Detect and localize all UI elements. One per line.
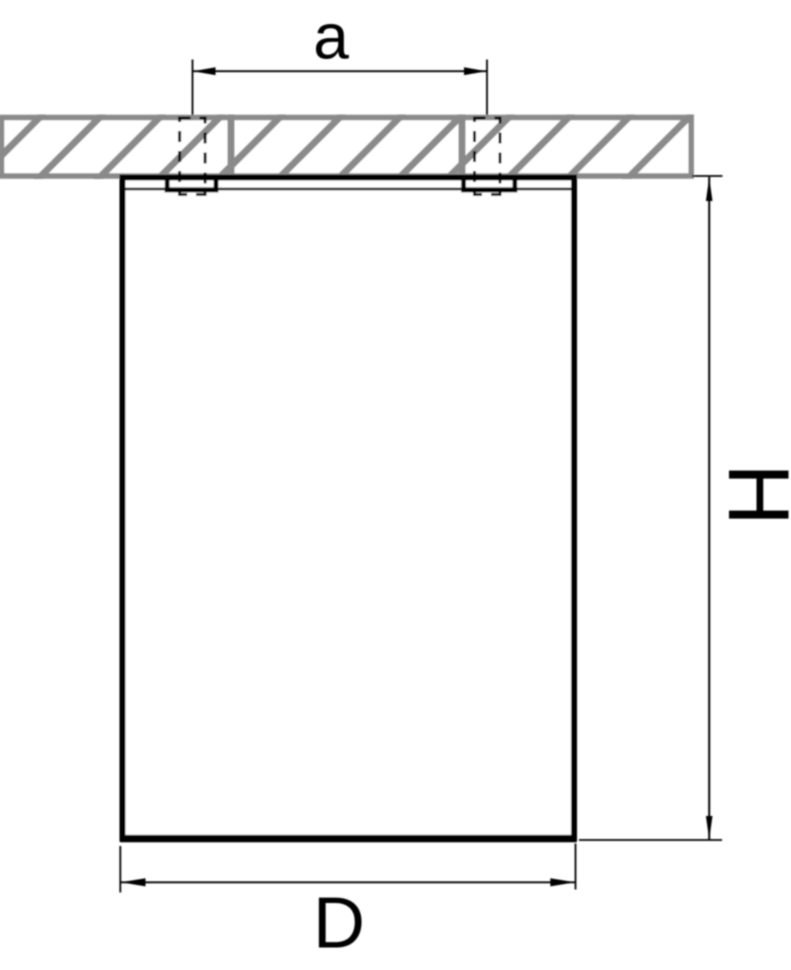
svg-text:D: D [313, 884, 365, 964]
svg-text:a: a [313, 1, 349, 73]
svg-text:H: H [710, 463, 791, 525]
